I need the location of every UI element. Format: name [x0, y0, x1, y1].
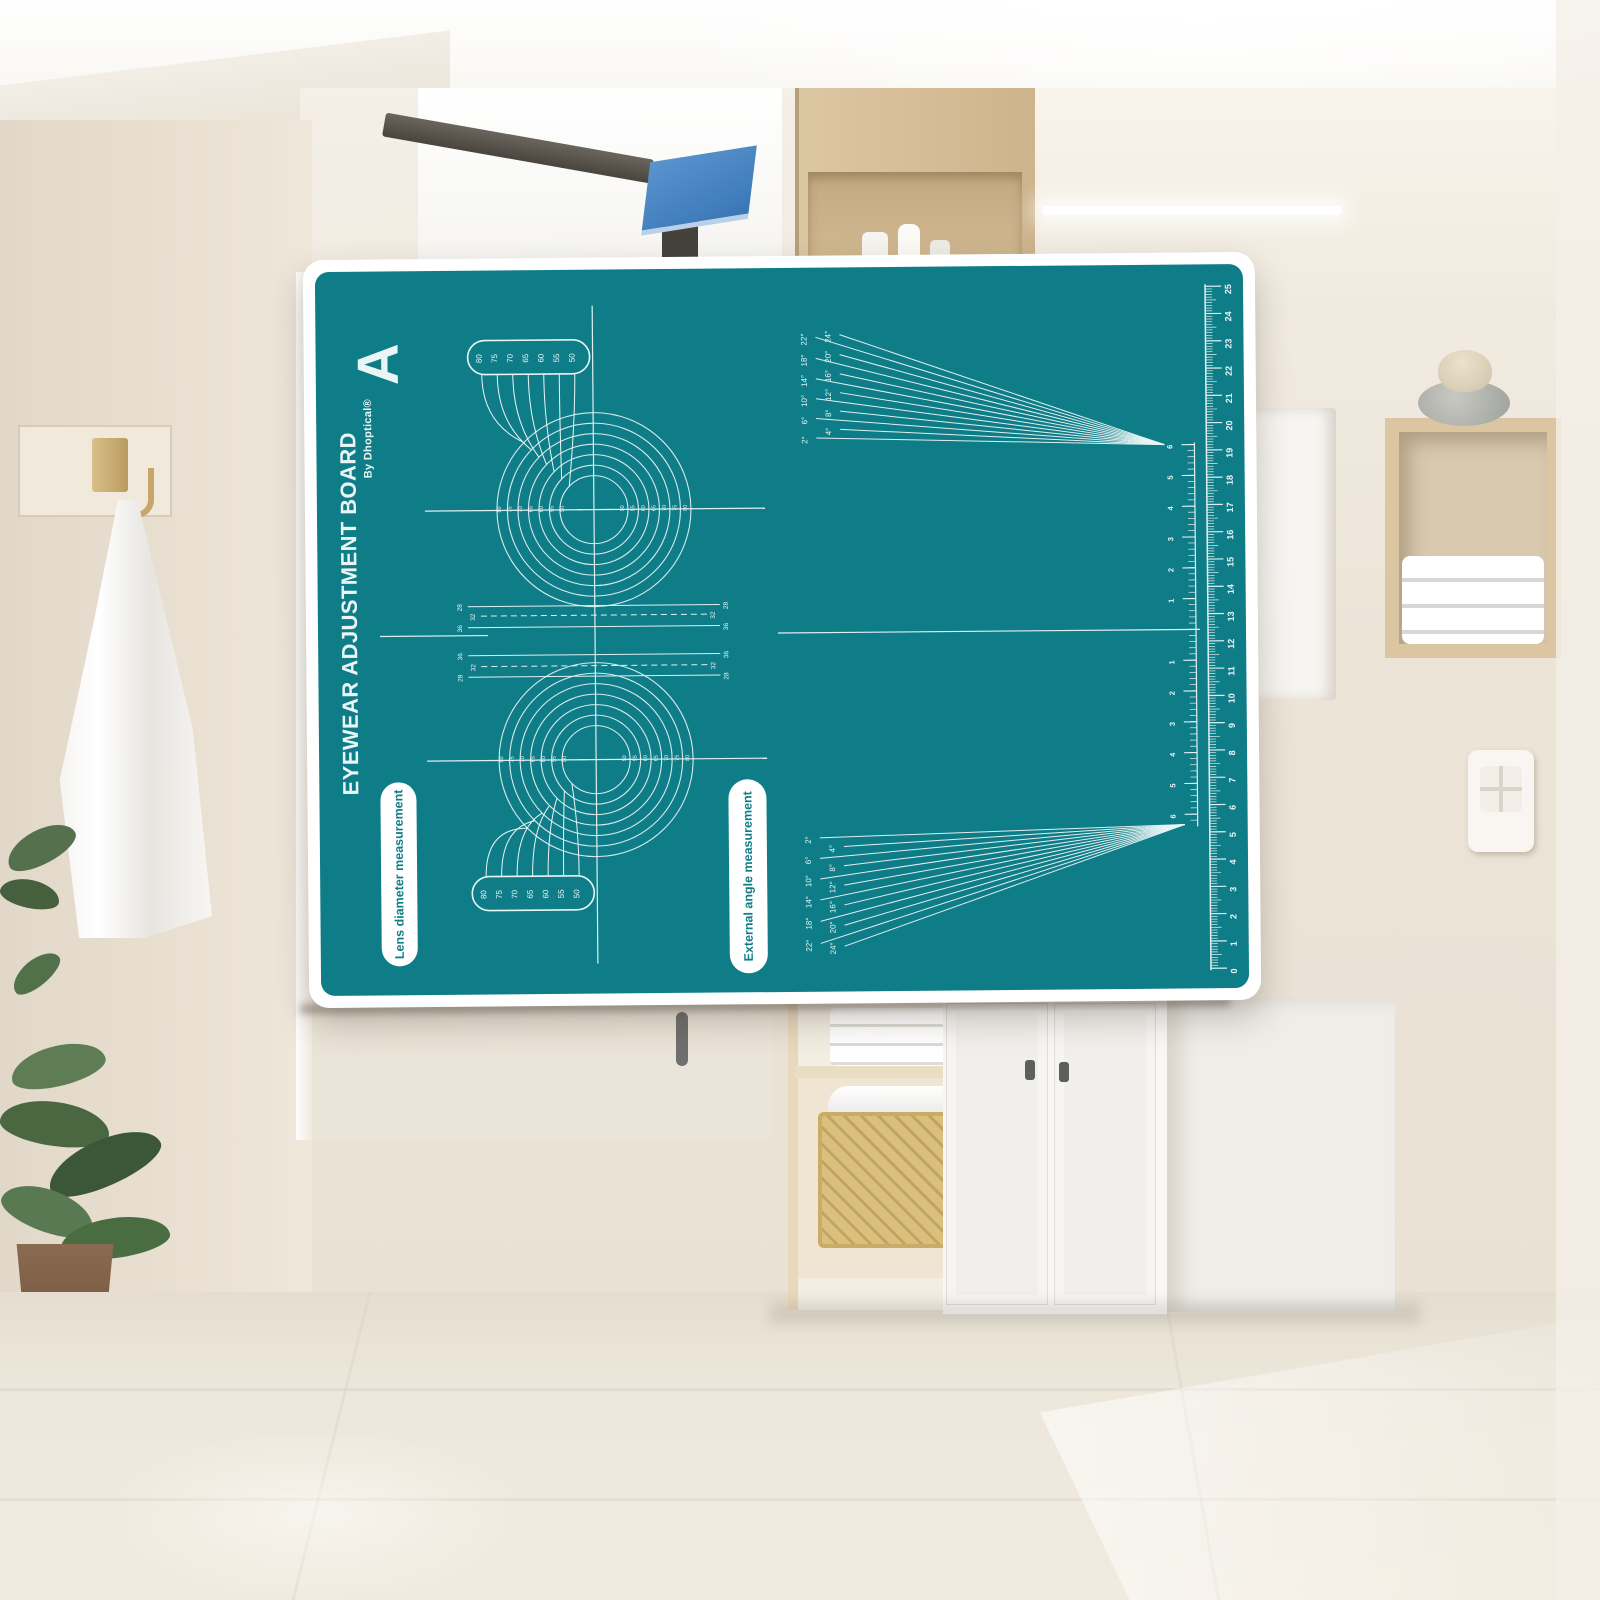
- decor-stone: [1438, 350, 1492, 392]
- svg-text:28: 28: [457, 604, 464, 612]
- svg-text:16°: 16°: [828, 901, 837, 913]
- svg-text:75: 75: [490, 353, 499, 363]
- svg-text:6°: 6°: [800, 417, 809, 425]
- svg-text:70: 70: [510, 889, 519, 899]
- svg-text:75: 75: [510, 756, 516, 762]
- svg-text:65: 65: [521, 353, 530, 363]
- cabinet-door-right: [1055, 1004, 1155, 1304]
- svg-text:5: 5: [1166, 475, 1175, 479]
- svg-text:65: 65: [531, 756, 537, 762]
- edge-ruler: 0123456789101112131415161718192021222324…: [1205, 284, 1239, 974]
- bottom-angle-fan: 2°4°6°8°10°12°14°16°18°20°22°24°: [804, 824, 1186, 954]
- potted-plant: [0, 810, 200, 1280]
- plant-leaf: [7, 1035, 110, 1097]
- svg-text:70: 70: [662, 505, 668, 511]
- board-surface: 8080757570706565606055555050808075757070…: [315, 264, 1249, 996]
- svg-text:24°: 24°: [829, 942, 838, 954]
- svg-text:32: 32: [710, 662, 717, 670]
- svg-text:5: 5: [1228, 832, 1238, 837]
- furniture-shadow: [770, 1302, 1420, 1324]
- svg-text:50: 50: [620, 505, 626, 511]
- folded-towels: [1402, 556, 1544, 644]
- svg-text:80: 80: [475, 354, 484, 364]
- crosshair-lines: [377, 304, 769, 965]
- svg-text:60: 60: [541, 756, 547, 762]
- svg-text:15: 15: [1225, 557, 1235, 567]
- svg-text:13: 13: [1226, 611, 1236, 621]
- svg-text:6: 6: [1169, 814, 1178, 818]
- svg-text:70: 70: [520, 756, 526, 762]
- svg-text:24: 24: [1223, 311, 1233, 321]
- svg-text:36: 36: [723, 650, 730, 658]
- vanity-cabinet-side: [1167, 998, 1395, 1312]
- svg-text:50: 50: [560, 506, 566, 512]
- svg-text:70: 70: [506, 353, 515, 363]
- board-corner-letter: A: [342, 329, 413, 400]
- svg-text:4°: 4°: [828, 845, 837, 853]
- light-switch-button: [1480, 766, 1522, 812]
- board-diagram: 8080757570706565606055555050808075757070…: [315, 264, 1249, 996]
- inner-scale: 112233445566: [1165, 442, 1197, 826]
- svg-text:6: 6: [1165, 445, 1174, 449]
- svg-text:6: 6: [1228, 805, 1238, 810]
- svg-text:12°: 12°: [828, 881, 837, 893]
- svg-text:9: 9: [1227, 723, 1237, 728]
- svg-text:50: 50: [562, 756, 568, 762]
- svg-text:1: 1: [1229, 941, 1239, 946]
- svg-text:11: 11: [1226, 666, 1236, 676]
- svg-text:75: 75: [675, 755, 681, 761]
- cabinet-handle: [1059, 1062, 1069, 1082]
- svg-text:2°: 2°: [804, 836, 813, 844]
- svg-text:14°: 14°: [800, 375, 809, 387]
- svg-text:36: 36: [457, 625, 464, 633]
- external-angle-label: External angle measurement: [728, 779, 768, 973]
- svg-text:6°: 6°: [804, 857, 813, 865]
- svg-text:2: 2: [1166, 568, 1175, 572]
- mid-baseline: [778, 629, 1200, 633]
- svg-text:8°: 8°: [828, 864, 837, 872]
- svg-text:36: 36: [723, 622, 730, 630]
- right-wall-corner: [1556, 0, 1600, 1600]
- svg-text:12°: 12°: [824, 389, 833, 401]
- svg-text:28: 28: [723, 672, 730, 680]
- vanity-cabinet: [943, 998, 1167, 1314]
- svg-text:19: 19: [1224, 448, 1234, 458]
- svg-text:8: 8: [1227, 750, 1237, 755]
- svg-text:55: 55: [549, 506, 555, 512]
- svg-text:60: 60: [643, 755, 649, 761]
- svg-text:80: 80: [685, 755, 691, 761]
- plant-leaf: [6, 945, 66, 1001]
- svg-text:18°: 18°: [800, 354, 809, 366]
- svg-text:3: 3: [1228, 887, 1238, 892]
- svg-text:14°: 14°: [804, 896, 813, 908]
- svg-text:22°: 22°: [805, 939, 814, 951]
- ceiling-light-strip: [1042, 206, 1342, 215]
- svg-text:10: 10: [1227, 693, 1237, 703]
- svg-text:70: 70: [518, 506, 524, 512]
- svg-text:4: 4: [1228, 859, 1238, 864]
- svg-text:55: 55: [552, 353, 561, 363]
- svg-text:50: 50: [568, 353, 577, 363]
- svg-text:55: 55: [633, 755, 639, 761]
- plant-leaf: [0, 874, 62, 914]
- svg-text:50: 50: [622, 755, 628, 761]
- svg-text:14: 14: [1226, 584, 1236, 594]
- svg-text:2: 2: [1168, 691, 1177, 695]
- svg-text:80: 80: [497, 506, 503, 512]
- svg-text:18°: 18°: [805, 917, 814, 929]
- svg-text:80: 80: [479, 890, 488, 900]
- svg-text:70: 70: [664, 755, 670, 761]
- svg-text:10°: 10°: [804, 875, 813, 887]
- svg-text:60: 60: [541, 889, 550, 899]
- svg-text:65: 65: [654, 755, 660, 761]
- svg-text:3: 3: [1168, 722, 1177, 726]
- svg-text:80: 80: [499, 756, 505, 762]
- svg-text:21: 21: [1224, 393, 1234, 403]
- svg-text:4°: 4°: [824, 428, 833, 436]
- svg-text:16°: 16°: [824, 370, 833, 382]
- svg-text:20: 20: [1224, 420, 1234, 430]
- svg-text:55: 55: [630, 505, 636, 511]
- svg-text:16: 16: [1225, 530, 1235, 540]
- sunlight-patch: [100, 1430, 530, 1600]
- svg-text:55: 55: [552, 756, 558, 762]
- svg-text:65: 65: [528, 506, 534, 512]
- top-angle-fan: 2°4°6°8°10°12°14°16°18°20°22°24°: [799, 328, 1164, 448]
- svg-text:36: 36: [457, 653, 464, 661]
- board-title: EYEWEAR ADJUSTMENT BOARD: [331, 459, 368, 769]
- svg-text:1: 1: [1167, 599, 1176, 603]
- svg-text:17: 17: [1225, 502, 1235, 512]
- svg-text:20°: 20°: [829, 921, 838, 933]
- svg-text:24°: 24°: [823, 331, 832, 343]
- svg-text:7: 7: [1227, 778, 1237, 783]
- svg-text:5: 5: [1168, 783, 1177, 787]
- svg-text:2°: 2°: [800, 436, 809, 444]
- svg-text:8°: 8°: [824, 409, 833, 417]
- svg-text:28: 28: [723, 601, 730, 609]
- lens-diameter-label: Lens diameter measurement: [380, 782, 418, 966]
- plant-leaf: [0, 815, 81, 880]
- svg-text:10°: 10°: [800, 395, 809, 407]
- board-white-backing: 8080757570706565606055555050808075757070…: [303, 252, 1261, 1008]
- svg-text:65: 65: [651, 505, 657, 511]
- cabinet-door-left: [947, 1004, 1047, 1304]
- svg-text:2: 2: [1228, 914, 1238, 919]
- svg-text:75: 75: [507, 506, 513, 512]
- svg-text:32: 32: [470, 664, 477, 672]
- svg-text:22°: 22°: [799, 333, 808, 345]
- svg-text:32: 32: [470, 613, 477, 621]
- svg-text:80: 80: [683, 505, 689, 511]
- svg-text:60: 60: [539, 506, 545, 512]
- glass-door-handle: [676, 1012, 688, 1066]
- svg-text:25: 25: [1223, 284, 1233, 294]
- svg-text:65: 65: [526, 889, 535, 899]
- svg-text:55: 55: [557, 889, 566, 899]
- svg-text:60: 60: [641, 505, 647, 511]
- svg-text:3: 3: [1166, 537, 1175, 541]
- svg-text:60: 60: [537, 353, 546, 363]
- svg-text:23: 23: [1223, 339, 1233, 349]
- svg-text:32: 32: [710, 611, 717, 619]
- svg-text:0: 0: [1229, 969, 1239, 974]
- svg-text:28: 28: [457, 674, 464, 682]
- svg-text:4: 4: [1168, 752, 1177, 757]
- svg-text:12: 12: [1226, 639, 1236, 649]
- bridge-measure-lines: 283632283632362832362832: [457, 601, 731, 681]
- svg-text:4: 4: [1166, 505, 1175, 510]
- svg-text:75: 75: [495, 889, 504, 899]
- svg-text:18: 18: [1225, 475, 1235, 485]
- svg-text:20°: 20°: [824, 351, 833, 363]
- svg-text:50: 50: [572, 889, 581, 899]
- svg-text:75: 75: [672, 505, 678, 511]
- cabinet-handle: [1025, 1060, 1035, 1080]
- svg-text:22: 22: [1224, 366, 1234, 376]
- bathroom-product-scene: 8080757570706565606055555050808075757070…: [0, 0, 1600, 1600]
- svg-text:1: 1: [1167, 660, 1176, 664]
